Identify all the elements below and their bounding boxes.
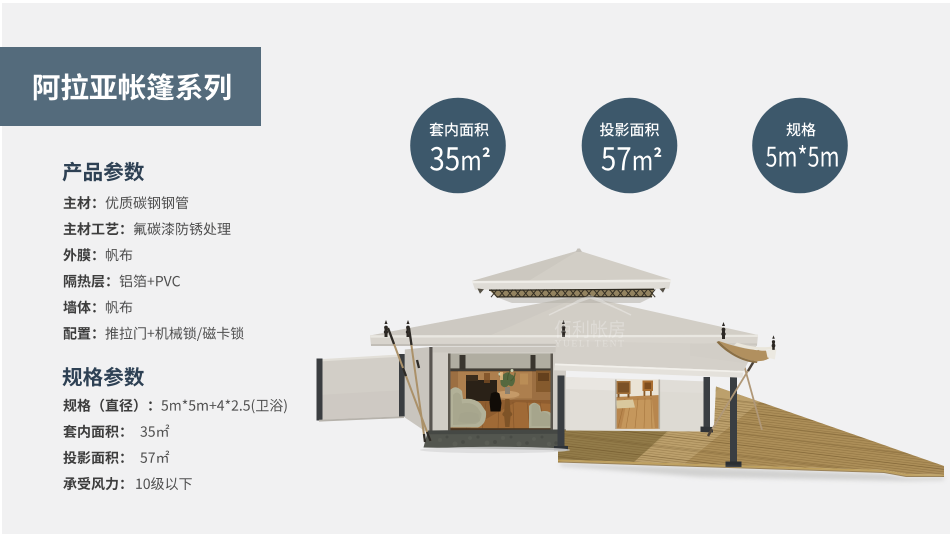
svg-text:YUELI TENT: YUELI TENT [555,340,626,350]
